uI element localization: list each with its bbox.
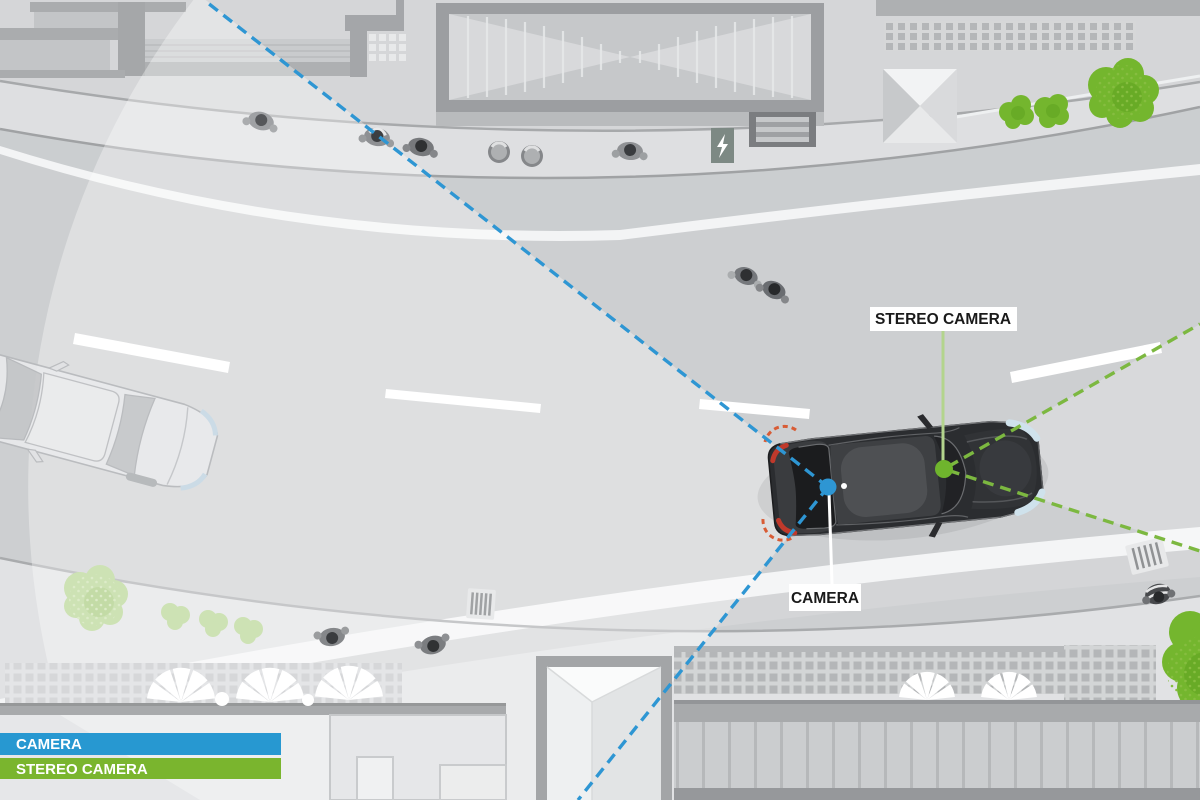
- svg-text:CAMERA: CAMERA: [791, 590, 859, 607]
- svg-text:STEREO CAMERA: STEREO CAMERA: [16, 761, 148, 778]
- svg-text:CAMERA: CAMERA: [16, 736, 82, 753]
- svg-text:STEREO CAMERA: STEREO CAMERA: [875, 311, 1011, 328]
